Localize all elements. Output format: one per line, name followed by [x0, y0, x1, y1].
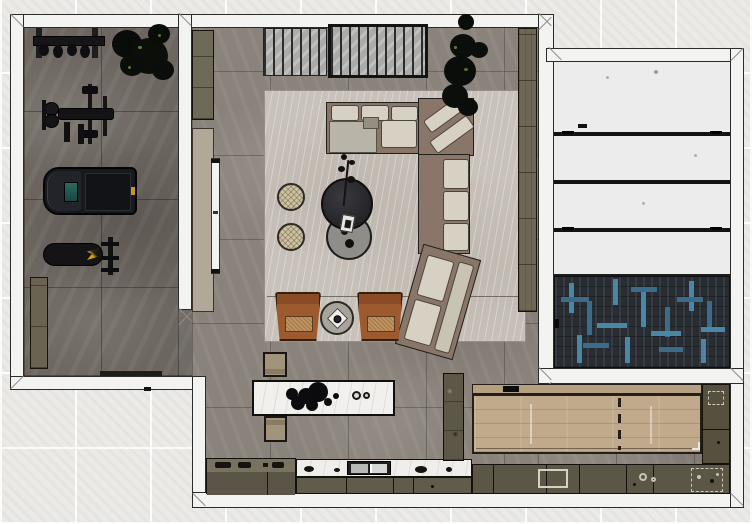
- table-plant-sprig: [334, 152, 358, 208]
- panel-gap: [554, 180, 730, 184]
- table-item: [345, 239, 354, 248]
- island-decor-flowers: [286, 388, 298, 400]
- louvered-panel[interactable]: [263, 28, 327, 76]
- tall-cabinet[interactable]: [443, 373, 464, 461]
- kitchen-island[interactable]: [252, 380, 395, 416]
- kitchen-counter-left[interactable]: [206, 458, 296, 494]
- cabinet-dot: [431, 485, 434, 488]
- sprig-leaf: [341, 154, 347, 160]
- sprig-leaf: [349, 160, 355, 165]
- panel-gap: [554, 228, 730, 232]
- wall-gym-divider: [178, 14, 192, 310]
- dining-bench[interactable]: [472, 384, 702, 394]
- table-edge-line: [476, 448, 700, 449]
- back-pillow: [391, 106, 418, 121]
- leaf-speckle: [464, 68, 468, 71]
- herringbone-plank: [701, 339, 706, 363]
- cabinet-divider: [393, 478, 394, 493]
- wall-kitchen-west: [192, 376, 206, 506]
- tray-dot: [710, 479, 714, 483]
- kitchen-counter-marble[interactable]: [296, 459, 472, 477]
- herringbone-plank: [561, 297, 589, 302]
- panel-gap-end: [710, 131, 722, 134]
- cabinet-divider: [626, 465, 627, 493]
- wall-annex-top: [546, 48, 744, 62]
- seat-cushion: [443, 191, 469, 221]
- sofa-tray: [363, 117, 379, 129]
- seat-cushion: [285, 316, 313, 332]
- tray: [327, 308, 348, 329]
- back-pillow: [331, 105, 359, 121]
- island-knob: [352, 391, 361, 400]
- island-stool[interactable]: [264, 416, 287, 442]
- living-plant[interactable]: [428, 12, 492, 116]
- cabinet-divider: [346, 478, 347, 493]
- wall-right: [730, 48, 744, 508]
- stool-edge: [265, 369, 285, 374]
- panel-speckle: [694, 154, 697, 157]
- bench-pad: [58, 108, 114, 120]
- treadmill-belt: [85, 173, 131, 211]
- treadmill[interactable]: [43, 167, 137, 215]
- door-stop: [144, 387, 151, 391]
- herringbone-plank: [641, 291, 646, 327]
- dining-counter-run[interactable]: [472, 464, 730, 494]
- sofa-right-section[interactable]: [418, 154, 470, 254]
- wood-streak: [530, 404, 532, 444]
- table-runner-dashed: [618, 398, 621, 450]
- tv-screen[interactable]: [211, 158, 220, 274]
- leaf-speckle: [158, 34, 161, 37]
- herringbone-plank: [587, 301, 592, 335]
- counter-mark: [651, 477, 656, 482]
- foliage: [458, 14, 474, 30]
- foliage: [120, 54, 144, 76]
- tv-bracket: [211, 269, 220, 273]
- herringbone-plank: [651, 331, 681, 336]
- floor-plan-canvas: [0, 0, 752, 524]
- tray-dot: [716, 473, 719, 476]
- panel-speckle: [654, 70, 658, 74]
- herringbone-plank: [707, 301, 712, 327]
- cooktop-grate: [238, 462, 251, 468]
- foliage: [458, 98, 478, 116]
- louvered-panel-framed[interactable]: [328, 24, 428, 78]
- leaf-speckle: [138, 46, 142, 49]
- weight-plate: [53, 45, 63, 58]
- weight-plate: [80, 45, 90, 58]
- gym-plant[interactable]: [104, 22, 178, 84]
- island-knob: [363, 392, 370, 399]
- counter-item: [263, 463, 268, 467]
- round-side-table[interactable]: [320, 301, 354, 335]
- counter-dot: [633, 483, 636, 486]
- wood-streak: [650, 406, 652, 444]
- cabinet-divider: [703, 429, 729, 430]
- herringbone-plank: [613, 279, 618, 305]
- herringbone-plank: [625, 337, 630, 363]
- tray-dot: [697, 475, 701, 479]
- herringbone-plank: [701, 327, 725, 332]
- wall-gym-bottom: [10, 376, 206, 390]
- foliage: [152, 60, 174, 80]
- cooktop-grate: [272, 462, 284, 468]
- cabinet-fronts: [207, 472, 295, 495]
- counter-sink-outline: [538, 469, 568, 488]
- cabinet-divider: [579, 465, 580, 493]
- rack-crossbar: [101, 268, 119, 272]
- herringbone-plank: [677, 297, 703, 302]
- panel-gap-end: [562, 131, 574, 134]
- armchair[interactable]: [275, 292, 321, 341]
- seat-cushion: [367, 316, 395, 332]
- sink-drainer: [370, 464, 387, 473]
- sink-unit: [347, 461, 391, 475]
- dining-table[interactable]: [472, 394, 702, 454]
- chair-back: [359, 294, 401, 304]
- herringbone-plank: [577, 335, 582, 363]
- seat-cushion: [443, 159, 469, 189]
- foliage: [470, 42, 488, 58]
- weight-plate: [67, 44, 77, 56]
- panel-speckle: [606, 76, 609, 79]
- table-corner-highlight: [692, 442, 700, 450]
- tv-mark: [213, 211, 218, 214]
- counter-dot: [717, 441, 720, 444]
- seat-cushion: [381, 120, 417, 148]
- pouf[interactable]: [277, 223, 305, 251]
- dining-counter-column[interactable]: [702, 384, 730, 464]
- counter-tray: [691, 468, 723, 492]
- wall-left: [10, 14, 24, 390]
- book-cover-mark: [344, 220, 351, 229]
- rack-crossbar: [101, 242, 119, 246]
- cabinet-divider: [267, 472, 268, 495]
- herringbone-plank: [631, 287, 657, 292]
- rack-crossbar: [101, 256, 119, 260]
- panel-gap-end: [710, 227, 722, 230]
- plate-stack: [82, 130, 98, 138]
- counter-item: [446, 467, 452, 472]
- leaf-speckle: [128, 66, 131, 69]
- herringbone-plank: [597, 323, 627, 328]
- counter-item: [415, 466, 427, 473]
- foliage: [444, 56, 476, 86]
- pouf[interactable]: [277, 183, 305, 211]
- panel-gap-end: [562, 227, 574, 230]
- cooktop-grate: [215, 462, 231, 468]
- treadmill-screen: [64, 182, 78, 202]
- plate-stack: [82, 86, 98, 94]
- panel-gap: [554, 132, 730, 136]
- counter-item: [334, 468, 340, 472]
- armchair[interactable]: [357, 292, 403, 341]
- rug-edge-mark: [555, 319, 559, 328]
- gym-door-leaf[interactable]: [100, 371, 162, 376]
- counter-mark: [708, 391, 724, 405]
- sprig-leaf: [347, 176, 355, 183]
- bench-item: [503, 386, 519, 392]
- herringbone-plank: [689, 281, 694, 311]
- sofa-top-section[interactable]: [326, 102, 420, 154]
- seat-cushion: [443, 223, 469, 251]
- tray-dish: [332, 314, 343, 325]
- weight-bench[interactable]: [43, 236, 125, 276]
- panel-mark: [578, 124, 587, 128]
- frame-bar: [42, 100, 46, 130]
- herringbone-plank: [583, 343, 609, 348]
- head-pad: [44, 114, 59, 128]
- counter-item: [304, 466, 314, 472]
- gym-storage-cabinet[interactable]: [30, 277, 48, 369]
- herringbone-plank: [659, 347, 683, 352]
- shelf-unit[interactable]: [518, 28, 537, 312]
- sprig-leaf: [338, 166, 345, 172]
- cabinet-divider: [413, 478, 414, 493]
- tv-cabinet[interactable]: [192, 30, 214, 120]
- bench-press-station[interactable]: [42, 84, 124, 146]
- leaf-speckle: [454, 46, 457, 49]
- stool-edge: [266, 420, 285, 425]
- tv-bracket: [211, 159, 220, 163]
- annex-white-panels[interactable]: [554, 62, 730, 276]
- leg: [64, 122, 70, 142]
- counter-mark: [639, 473, 647, 481]
- leg: [78, 124, 84, 144]
- kitchen-cabinet-fronts[interactable]: [296, 477, 472, 494]
- wall-center-divider: [538, 14, 554, 394]
- weight-plate: [39, 44, 49, 56]
- treadmill-tag: [131, 187, 135, 195]
- chair-back: [277, 294, 319, 304]
- island-stool[interactable]: [263, 352, 287, 377]
- panel-speckle: [642, 202, 645, 205]
- sink-basin: [351, 464, 368, 473]
- barbell-rack[interactable]: [33, 28, 105, 60]
- herringbone-rug[interactable]: [554, 276, 730, 368]
- cabinet-divider: [493, 465, 494, 493]
- wall-annex-mid: [538, 368, 744, 384]
